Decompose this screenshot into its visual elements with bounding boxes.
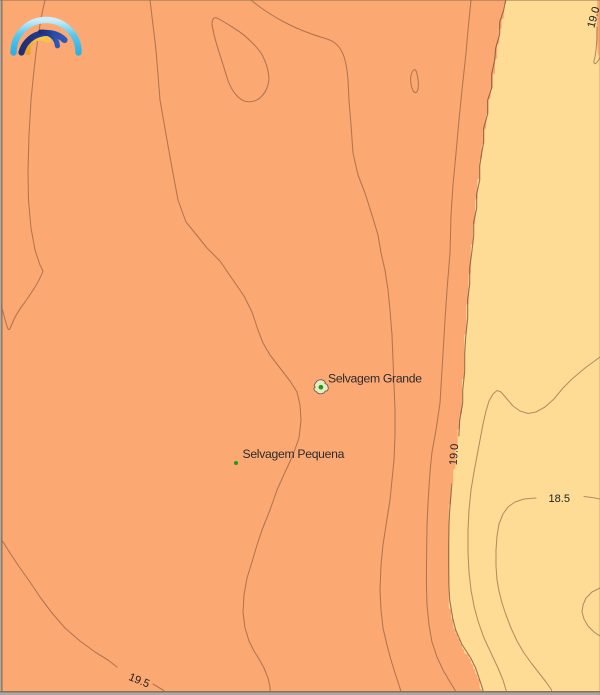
svg-text:19.0: 19.0 [448,443,461,465]
svg-text:Selvagem Pequena: Selvagem Pequena [243,447,345,461]
svg-text:19.5: 19.5 [127,671,151,690]
svg-text:18.5: 18.5 [549,493,571,505]
svg-text:Selvagem Grande: Selvagem Grande [328,371,422,385]
